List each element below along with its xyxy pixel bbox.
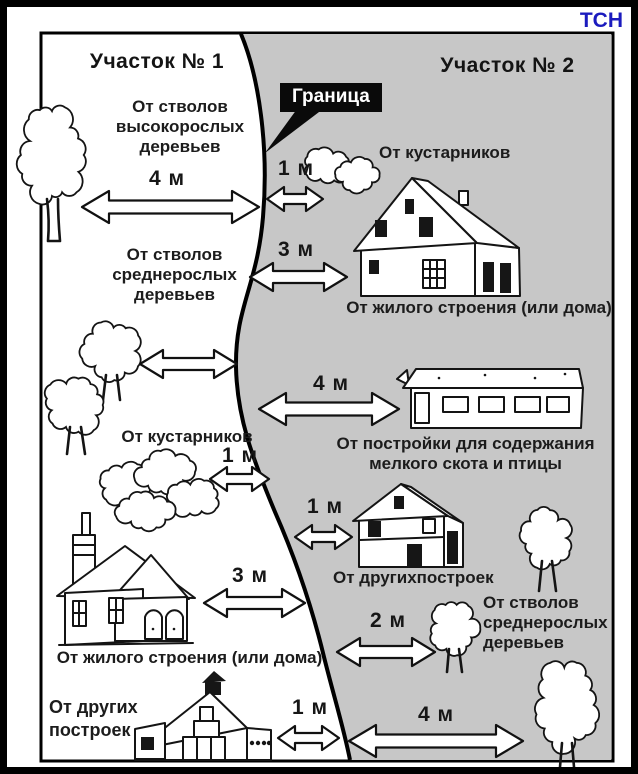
distance-tall-trees-left: 4 м xyxy=(125,168,209,190)
distance-tall-tree-right: 4 м xyxy=(399,704,473,726)
distance-other-right: 1 м xyxy=(293,496,357,518)
distance-shrubs-left: 1 м xyxy=(205,445,275,467)
distance-medium-trees-right: 2 м xyxy=(351,610,425,632)
boundary-label: Граница xyxy=(280,83,382,112)
label-shrubs-right: От кустарников xyxy=(379,143,529,163)
distance-other-left: 1 м xyxy=(279,697,341,719)
label-house-left: От жилого строения (или дома) xyxy=(47,648,332,668)
distance-house-left: 3 м xyxy=(213,565,287,587)
tsn-distance-diagram: ТСН Участок № 1 Участок № 2 Граница От с… xyxy=(0,0,638,774)
distance-livestock-right: 4 м xyxy=(291,373,371,395)
plot2-title: Участок № 2 xyxy=(425,54,590,78)
label-medium-trees-left: От стволов среднерослых деревьев xyxy=(92,245,257,305)
label-tall-trees-left: От стволов высокорослых деревьев xyxy=(95,97,265,157)
distance-shrubs-right: 1 м xyxy=(265,158,327,180)
label-medium-trees-right: От стволов среднерослых деревьев xyxy=(483,593,623,653)
tsn-logo: ТСН xyxy=(563,9,623,33)
label-other-left: От других построек xyxy=(49,696,159,742)
plot1-title: Участок № 1 xyxy=(77,50,237,74)
livestock-building-icon xyxy=(397,369,583,428)
distance-house-right: 3 м xyxy=(259,239,333,261)
label-livestock-right: От постройки для содержания мелкого скот… xyxy=(323,434,608,474)
label-house-right: От жилого строения (или дома) xyxy=(335,298,623,318)
label-other-right: От другихпостроек xyxy=(333,568,523,588)
